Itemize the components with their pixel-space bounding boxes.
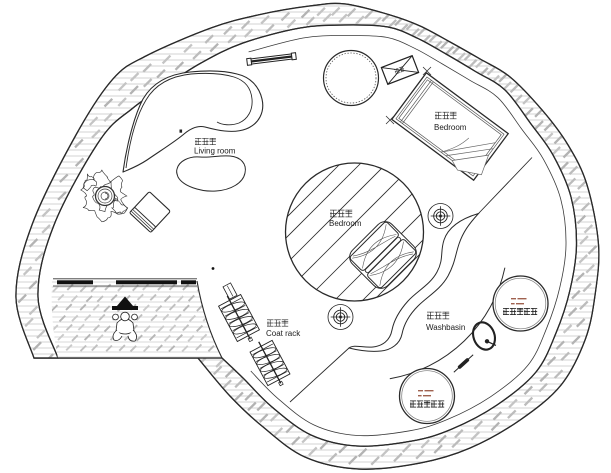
svg-text:Coat rack: Coat rack bbox=[266, 329, 301, 338]
svg-text:Bedroom: Bedroom bbox=[329, 219, 362, 228]
svg-text:Bedroom: Bedroom bbox=[434, 123, 467, 132]
svg-text:Living room: Living room bbox=[194, 147, 236, 156]
svg-text:Washbasin: Washbasin bbox=[426, 323, 465, 332]
